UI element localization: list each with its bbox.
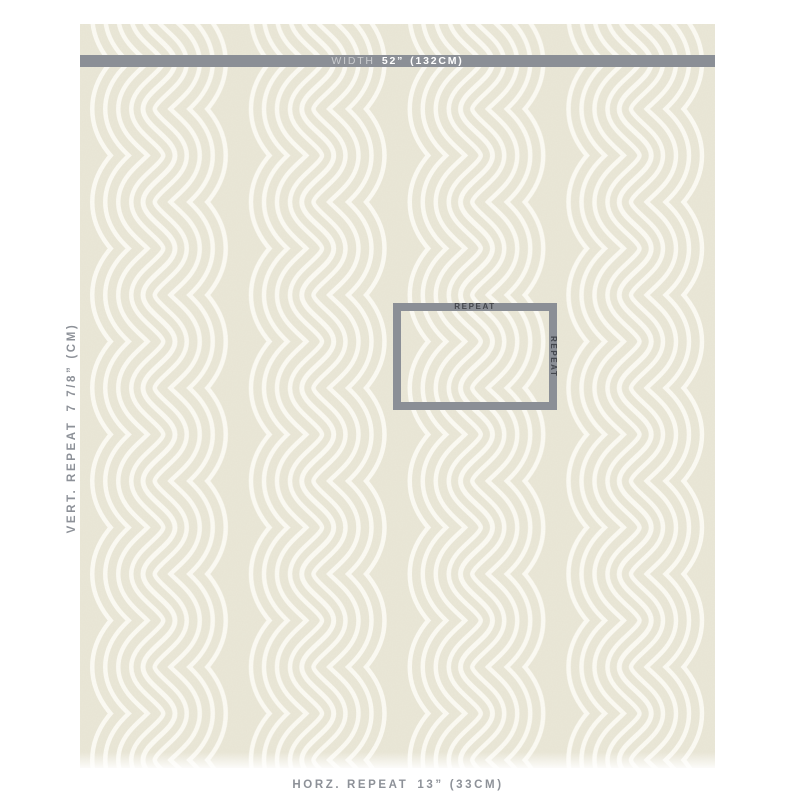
width-bar: WIDTH 52” (132CM): [80, 55, 715, 67]
page: { "swatch": { "pattern_name": "zen-scrol…: [0, 0, 800, 800]
repeat-box: REPEAT REPEAT: [393, 303, 557, 410]
vertical-repeat-label: VERT. REPEAT7 7/8”(CM): [66, 323, 78, 534]
width-bar-metric: (132CM): [410, 55, 463, 67]
vertical-repeat-text: VERT. REPEAT: [66, 421, 78, 534]
vertical-repeat-value: 7 7/8”: [66, 365, 78, 412]
repeat-box-top-label: REPEAT: [401, 303, 549, 311]
vertical-repeat-metric: (CM): [66, 323, 78, 359]
width-bar-label: WIDTH: [331, 55, 374, 67]
horizontal-repeat-text: HORZ. REPEAT: [292, 779, 408, 791]
width-bar-value: 52”: [382, 55, 404, 67]
repeat-box-side-label: REPEAT: [549, 311, 557, 402]
horizontal-repeat-label: HORZ. REPEAT13”(33CM): [292, 779, 503, 791]
horizontal-repeat-metric: (33CM): [450, 779, 504, 791]
horizontal-repeat-value: 13”: [417, 779, 443, 791]
fabric-swatch: WIDTH 52” (132CM) REPEAT REPEAT: [80, 24, 715, 768]
